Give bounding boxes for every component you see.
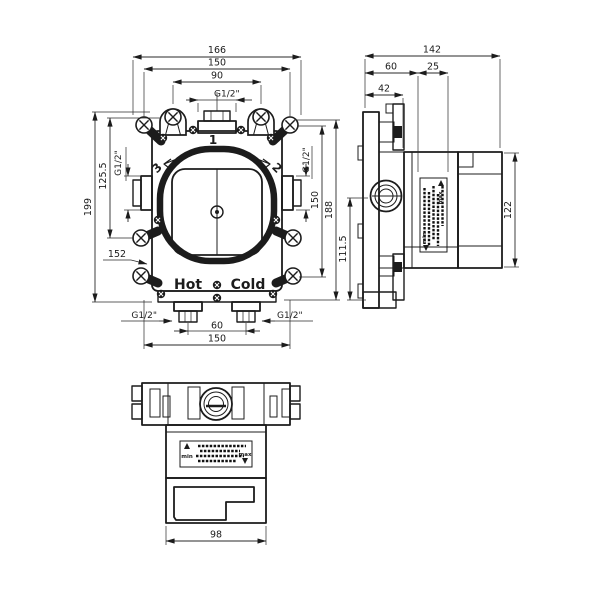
dim-overall-depth: 142 (423, 45, 441, 56)
hot-marking: Hot (174, 277, 202, 293)
screw-icon (282, 117, 298, 133)
depth-sticker-side: max min (420, 178, 447, 252)
recess-step-outline (174, 487, 254, 520)
dim-overall-height: 199 (83, 198, 94, 216)
right-outlet-port (282, 176, 301, 210)
dim-side-outlet-thread-right: G1/2" (302, 147, 312, 173)
dim-side-outlet-thread-left: G1/2" (114, 150, 124, 176)
dim-side-holes-span: 150 (310, 191, 321, 209)
lower-bracket-tab (393, 254, 404, 300)
left-outlet-port (133, 176, 152, 210)
dim-front-depth: 60 (385, 62, 397, 73)
dim-lower-height: 111.5 (338, 235, 349, 262)
flange-bar (142, 383, 290, 425)
dim-trim-zone: 25 (427, 62, 439, 73)
sticker-min-label: min (181, 454, 193, 460)
bottom-view: min max 98 (132, 383, 300, 545)
min-arrow-icon (423, 245, 429, 251)
dim-top-holes-span: 90 (211, 71, 223, 82)
outlet-number-top: 1 (209, 133, 217, 147)
max-arrow-icon (242, 458, 248, 464)
rear-block-step (459, 153, 473, 167)
screw-icon (133, 230, 149, 246)
dim-ref-152: 152 (108, 249, 126, 260)
screw-icon (253, 109, 269, 125)
front-body: 1 3 2 Hot Cold (133, 92, 301, 322)
side-dimensions: 142 60 25 42 111.5 122 (338, 45, 519, 301)
screw-boss-upper (379, 122, 394, 142)
top-port-circle (200, 388, 232, 420)
bottom-body: min max (132, 383, 300, 523)
screw-icon (133, 268, 149, 284)
drawing-sheet: 1 3 2 Hot Cold 166 150 90 (0, 0, 600, 600)
side-view: max min 142 60 25 42 111.5 (338, 45, 519, 309)
front-view: 1 3 2 Hot Cold 166 150 90 (83, 45, 340, 349)
dim-overall-width: 166 (208, 45, 226, 56)
center-screw-dot (215, 210, 219, 214)
inlet-port-hot (174, 302, 202, 322)
dim-mount-width: 150 (208, 58, 226, 69)
housing-rear-block (458, 152, 502, 268)
sticker-min-label: min (422, 232, 428, 244)
dim-housing-height: 122 (503, 201, 514, 219)
cold-marking: Cold (231, 277, 266, 293)
dim-body-height: 188 (324, 201, 335, 219)
dim-flange-depth: 42 (378, 84, 390, 95)
inlet-port-cold (232, 302, 260, 322)
wall-flange-plate (363, 112, 379, 308)
screw-icon (285, 268, 301, 284)
dim-housing-width: 98 (210, 530, 222, 541)
screw-icon (285, 230, 301, 246)
screw-icon (136, 117, 152, 133)
sticker-max-label: max (438, 191, 444, 204)
side-body: max min (358, 104, 502, 308)
dim-top-outlet-thread: G1/2" (214, 90, 240, 100)
screw-boss-lower (379, 256, 394, 276)
dim-holes-to-side-outlet: 125.5 (98, 162, 109, 189)
dim-bottom-mount-width: 150 (208, 334, 226, 345)
sticker-max-label: max (239, 452, 252, 458)
max-arrow-icon (438, 180, 444, 186)
dim-inlet-spacing: 60 (211, 321, 223, 332)
screw-icon (165, 109, 181, 125)
technical-drawing: 1 3 2 Hot Cold 166 150 90 (0, 0, 600, 600)
depth-sticker-bottom: min max (180, 441, 252, 467)
min-arrow-icon (184, 443, 190, 449)
housing-lower-section (166, 478, 266, 523)
bottom-dimensions: 98 (166, 526, 266, 545)
